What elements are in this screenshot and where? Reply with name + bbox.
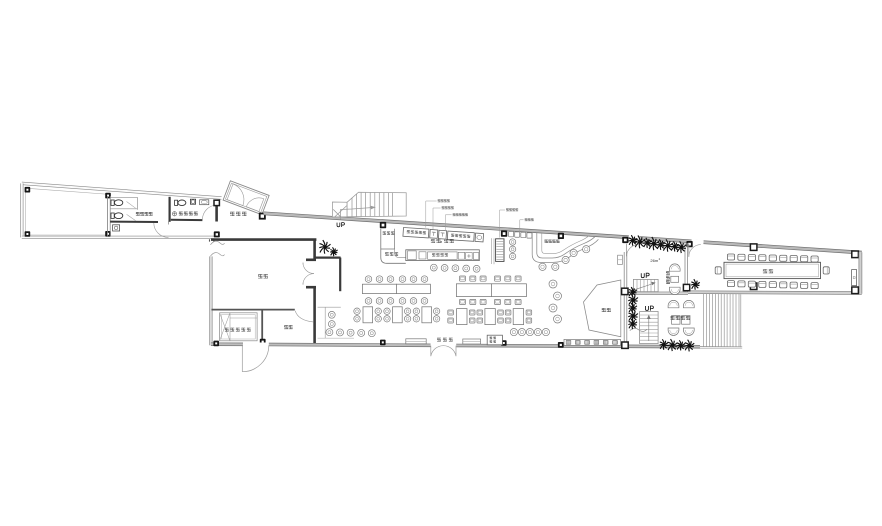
svg-text:26m: 26m [650, 258, 658, 263]
